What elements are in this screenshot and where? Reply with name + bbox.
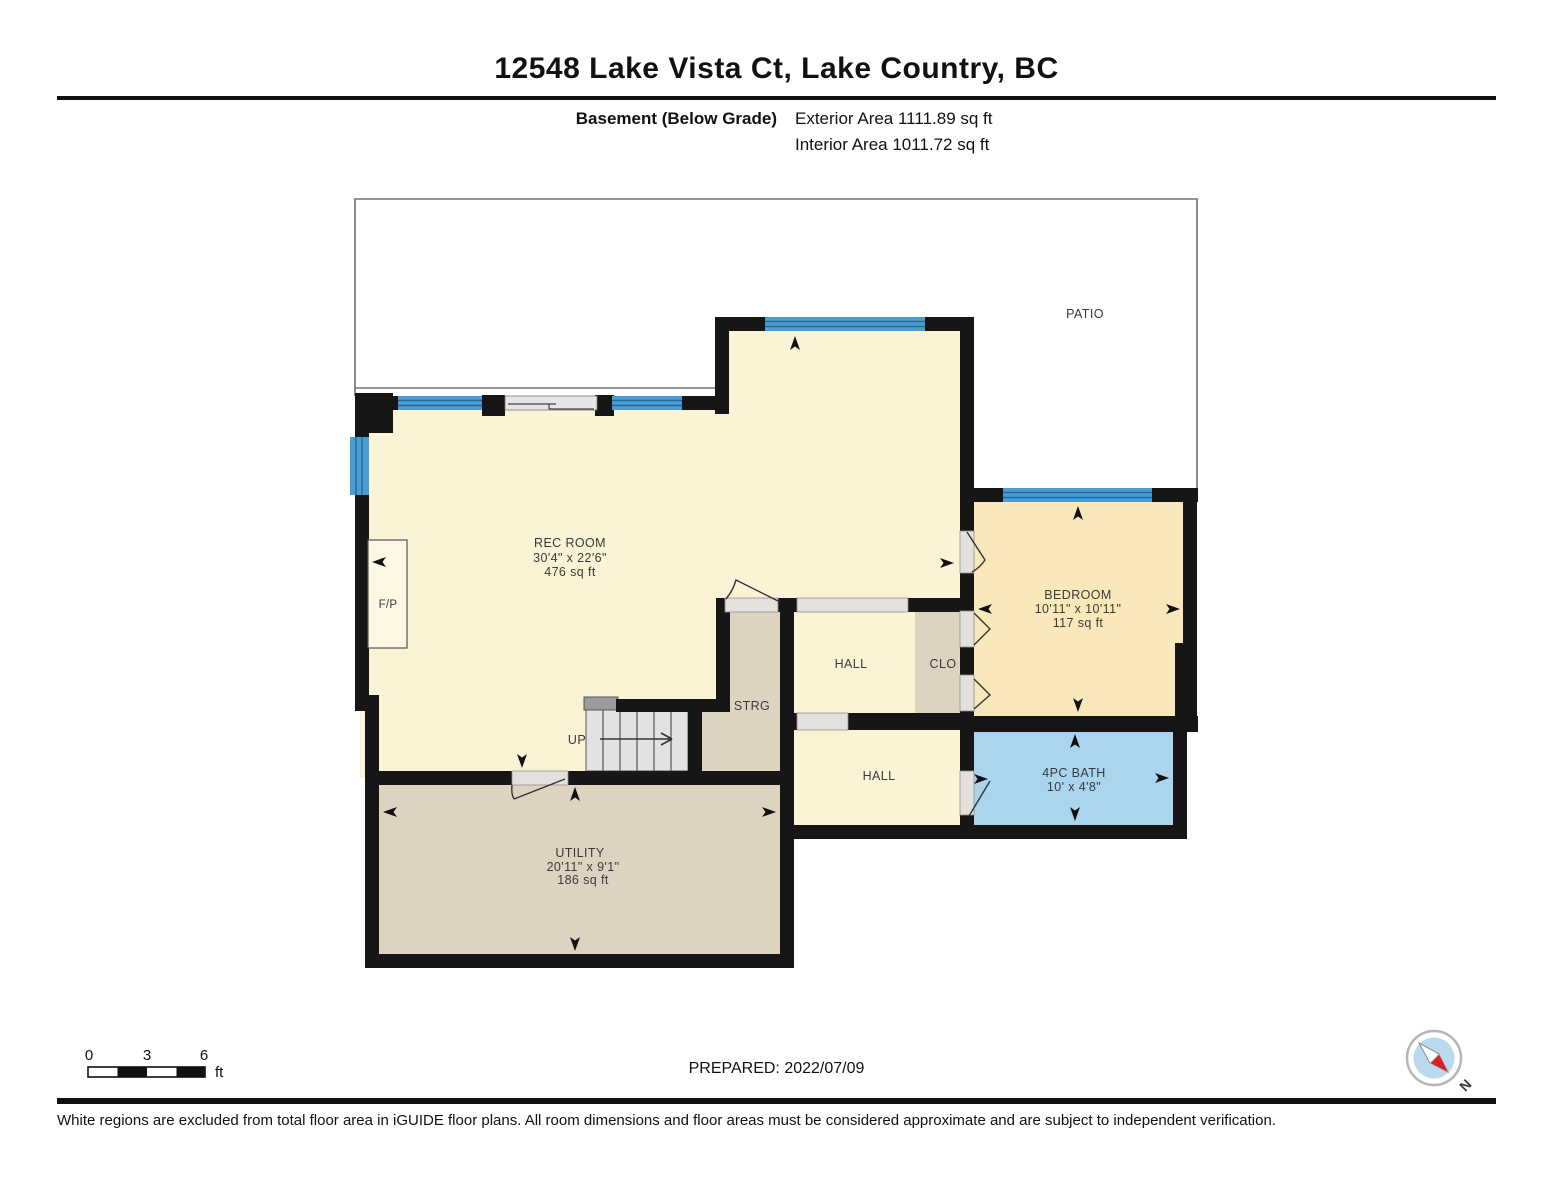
utility-label: UTILITY: [555, 846, 605, 860]
rec-room-window-right: [612, 396, 682, 410]
upper-hall-label: HALL: [835, 657, 868, 671]
rec-room-dims: 30'4" x 22'6": [533, 551, 607, 565]
compass-north-label: N: [1456, 1076, 1474, 1094]
bedroom-label: BEDROOM: [1044, 588, 1111, 602]
stairs-up-label: UP: [568, 733, 586, 747]
patio-label: PATIO: [1066, 307, 1104, 321]
utility-area: 186 sq ft: [557, 873, 609, 887]
fireplace-label: F/P: [379, 599, 398, 611]
rec-room-label: REC ROOM: [534, 536, 606, 550]
rec-room-window-west: [350, 437, 369, 495]
room-fills: [360, 325, 1190, 958]
bedroom-dims: 10'11" x 10'11": [1035, 602, 1122, 616]
bath-label: 4PC BATH: [1042, 766, 1105, 780]
bath-dims: 10' x 4'8": [1047, 780, 1101, 794]
rec-room-window-top: [765, 317, 925, 331]
storage-label: STRG: [734, 699, 770, 713]
rec-room-area: 476 sq ft: [544, 565, 596, 579]
bedroom-window: [1003, 488, 1152, 502]
sliding-patio-door: [505, 396, 597, 410]
fireplace-box: [368, 540, 407, 648]
floor-plan: PATIO REC ROOM 30'4" x 22'6" 476 sq ft F…: [0, 0, 1553, 1200]
lower-hall-label: HALL: [863, 769, 896, 783]
utility-dims: 20'11" x 9'1": [547, 860, 620, 874]
bedroom-area: 117 sq ft: [1053, 616, 1104, 630]
footer-divider: [57, 1098, 1496, 1104]
rec-room-window-left: [398, 396, 482, 410]
prepared-date: PREPARED: 2022/07/09: [0, 1060, 1553, 1078]
disclaimer-text: White regions are excluded from total fl…: [57, 1112, 1496, 1129]
closet-label: CLO: [930, 657, 957, 671]
